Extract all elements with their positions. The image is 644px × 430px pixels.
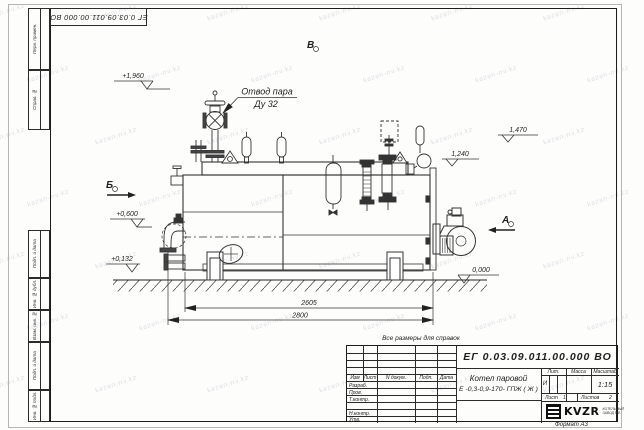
kvzr-logo-text: KVZR xyxy=(564,405,599,418)
dim-2800-label: 2800 xyxy=(291,313,308,320)
sheet-label: Лист xyxy=(545,395,558,401)
format-label: Формат А3 xyxy=(555,422,588,428)
th-podp: Подп. xyxy=(415,375,437,381)
front-small-valve xyxy=(171,166,183,185)
svg-text:В: В xyxy=(307,40,314,51)
th-doc: N докум. xyxy=(377,375,415,381)
row-tkontr: Т.контр. xyxy=(349,397,369,403)
svg-text:Б: Б xyxy=(106,180,113,191)
th-izm: Изм xyxy=(347,375,363,381)
sheets-label: Листов xyxy=(581,395,599,401)
steam-callout-line1: Отвод пара xyxy=(241,87,292,97)
steam-callout-line2: Ду 32 xyxy=(253,99,277,109)
kvzr-logo-subtext: КОТЕЛЬНЫЙ ЗАВОД Р.Ф. xyxy=(602,408,623,416)
elev-0600-label: +0,600 xyxy=(116,211,138,218)
drain-pipes xyxy=(164,254,185,270)
th-masshtab: Масштаб xyxy=(591,369,619,375)
pressure-gauge xyxy=(406,126,431,174)
burner-unit xyxy=(433,208,476,256)
svg-text:А: А xyxy=(501,215,509,226)
elev-1960-label: +1,960 xyxy=(122,73,144,80)
elev-0132-label: +0,132 xyxy=(111,256,133,263)
title-doc-number: ЕГ 0.03.09.011.00.000 ВО xyxy=(456,346,619,368)
kvzr-logo: KVZR КОТЕЛЬНЫЙ ЗАВОД Р.Ф. xyxy=(546,404,624,419)
ground-hatching xyxy=(113,280,487,292)
sheet-value: 1 xyxy=(563,395,566,401)
view-marker-v: В xyxy=(307,40,319,52)
elev-1470-label: 1,470 xyxy=(509,127,527,134)
product-name-line2: Е -0,3-0,9-170- ГПЖ ( Ж ) xyxy=(456,384,541,395)
th-massa: Масса xyxy=(566,369,591,375)
dim-2605-label: 2605 xyxy=(300,300,317,307)
burner-elbow xyxy=(160,214,186,252)
drawing-sheet: kazan-nv.kzkazan-nv.kzkazan-nv.kzkazan-n… xyxy=(0,0,644,430)
view-marker-a: А xyxy=(488,215,515,233)
support-legs xyxy=(207,252,403,280)
sheets-value: 2 xyxy=(609,395,612,401)
valve-lever xyxy=(385,135,393,155)
title-block: ЕГ 0.03.09.011.00.000 ВО Изм Лист N доку… xyxy=(346,345,618,422)
top-fittings xyxy=(191,91,431,215)
kvzr-logo-subtext-2: ЗАВОД Р.Ф. xyxy=(602,411,621,415)
row-razrab: Разраб. xyxy=(349,383,367,389)
reference-note: Все размеры для справок xyxy=(382,334,461,342)
blowdown-pipe xyxy=(191,140,206,162)
row-prov: Пров. xyxy=(349,390,362,396)
boiler-top-platform xyxy=(202,162,408,175)
scale-value: 1:15 xyxy=(591,377,619,391)
th-data: Дата xyxy=(437,375,456,381)
safety-valve-icon xyxy=(242,132,251,163)
kvzr-logo-icon xyxy=(546,404,561,419)
elev-0000-label: 0,000 xyxy=(472,267,490,274)
rear-wall xyxy=(430,168,436,270)
front-fittings xyxy=(160,166,186,270)
th-list: Лист xyxy=(363,375,377,381)
separator-vessel xyxy=(326,155,341,215)
elev-1240-label: 1,240 xyxy=(451,151,469,158)
lit-value: И xyxy=(541,377,549,391)
row-utv: Утв. xyxy=(349,417,360,423)
view-marker-b: Б xyxy=(106,180,136,198)
th-lit: Лит. xyxy=(541,369,566,375)
water-level-gauge xyxy=(360,160,374,211)
safety-valve-icon xyxy=(277,132,286,163)
row-nkontr: Н.контр. xyxy=(349,411,370,417)
steam-outlet-valve xyxy=(203,91,227,162)
